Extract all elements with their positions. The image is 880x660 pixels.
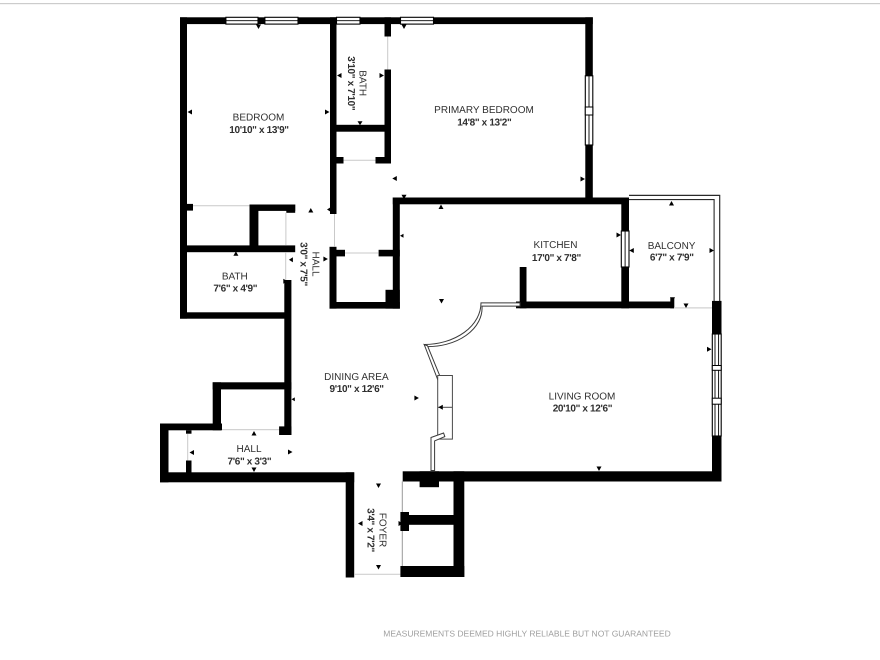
svg-text:BATH: BATH [222,271,248,282]
svg-text:HALL: HALL [236,444,261,455]
svg-text:BEDROOM: BEDROOM [233,112,285,123]
svg-text:BALCONY: BALCONY [648,241,696,252]
svg-text:BATH: BATH [357,70,368,96]
svg-text:3'0" x 7'5": 3'0" x 7'5" [298,242,309,286]
svg-text:FOYER: FOYER [376,513,387,547]
svg-text:7'6" x 3'3": 7'6" x 3'3" [228,456,272,467]
svg-text:3'4" x 7'2": 3'4" x 7'2" [364,508,375,552]
svg-text:17'0" x 7'8": 17'0" x 7'8" [532,253,582,264]
svg-text:KITCHEN: KITCHEN [534,240,578,251]
svg-text:3'10" x 7'10": 3'10" x 7'10" [345,56,356,111]
svg-text:6'7" x 7'9": 6'7" x 7'9" [650,253,694,264]
svg-text:DINING AREA: DINING AREA [324,372,389,383]
svg-text:7'6" x 4'9": 7'6" x 4'9" [213,284,257,295]
svg-text:9'10" x 12'6": 9'10" x 12'6" [330,384,385,395]
svg-text:HALL: HALL [310,251,321,276]
svg-text:14'8" x 13'2": 14'8" x 13'2" [457,118,512,129]
svg-text:LIVING ROOM: LIVING ROOM [549,391,616,402]
svg-text:PRIMARY BEDROOM: PRIMARY BEDROOM [434,105,534,116]
svg-text:MEASUREMENTS DEEMED HIGHLY REL: MEASUREMENTS DEEMED HIGHLY RELIABLE BUT … [383,629,671,639]
svg-text:20'10" x 12'6": 20'10" x 12'6" [553,404,613,415]
svg-text:10'10" x 13'9": 10'10" x 13'9" [229,125,289,136]
